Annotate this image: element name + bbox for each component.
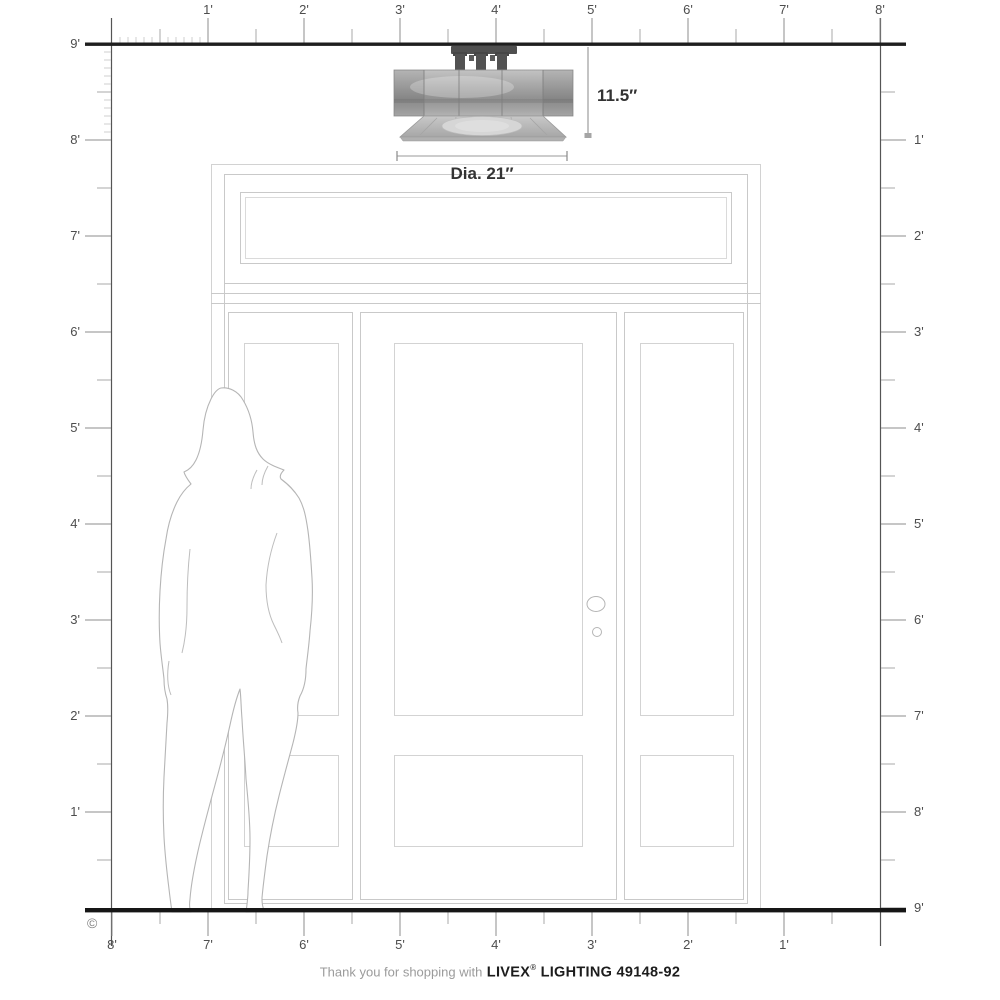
ruler-label: 5' xyxy=(579,2,605,18)
fixture-diffuser xyxy=(400,116,566,141)
scale-figure-silhouette xyxy=(159,388,312,912)
height-dimension-line xyxy=(585,47,592,138)
ruler-label: 3' xyxy=(52,612,80,628)
ruler-label: 1' xyxy=(52,804,80,820)
ruler-label: 1' xyxy=(771,937,797,953)
door-transom xyxy=(241,193,732,264)
ruler-label: 4' xyxy=(52,516,80,532)
ruler-label: 4' xyxy=(483,2,509,18)
ruler-label: 2' xyxy=(914,228,942,244)
fixture-posts xyxy=(453,52,509,71)
ruler-label: 9' xyxy=(52,36,80,52)
ruler-label: 7' xyxy=(914,708,942,724)
diameter-dimension-label: Dia. 21″ xyxy=(400,164,564,184)
diagram-canvas xyxy=(0,0,1000,1000)
product-dimension-diagram: 1'2'3'4'5'6'7'8' 9'8'7'6'5'4'3'2'1' 1'2'… xyxy=(0,0,1000,1000)
ruler-label: 2' xyxy=(52,708,80,724)
footer-text: Thank you for shopping with LIVEX® LIGHT… xyxy=(0,963,1000,981)
copyright-symbol: © xyxy=(87,915,97,931)
ruler-label: 1' xyxy=(195,2,221,18)
ruler-label: 1' xyxy=(914,132,942,148)
ruler-label: 8' xyxy=(914,804,942,820)
fixture-graphic xyxy=(394,46,573,141)
ruler-label: 7' xyxy=(52,228,80,244)
height-dimension-label: 11.5″ xyxy=(597,86,637,106)
ruler-label: 3' xyxy=(579,937,605,953)
ruler-label: 2' xyxy=(675,937,701,953)
diameter-dimension-line xyxy=(397,151,567,161)
fixture-drum-shade xyxy=(394,70,573,116)
ruler-label: 3' xyxy=(387,2,413,18)
ruler-label: 8' xyxy=(52,132,80,148)
ruler-label: 8' xyxy=(867,2,893,18)
ruler-label: 6' xyxy=(52,324,80,340)
product-number: LIGHTING 49148-92 xyxy=(541,964,681,980)
ruler-label: 5' xyxy=(387,937,413,953)
ceiling-line xyxy=(85,43,906,46)
footer-prefix: Thank you for shopping with xyxy=(320,964,483,979)
ruler-label: 6' xyxy=(291,937,317,953)
ruler-label: 7' xyxy=(195,937,221,953)
door-sidelight-right xyxy=(625,313,744,900)
ruler-label: 4' xyxy=(914,420,942,436)
ruler-label: 6' xyxy=(675,2,701,18)
floor-line xyxy=(85,908,906,912)
ruler-label: 7' xyxy=(771,2,797,18)
brand-name: LIVEX xyxy=(487,964,530,980)
ruler-label: 3' xyxy=(914,324,942,340)
door-knob xyxy=(587,597,605,637)
ruler-label: 9' xyxy=(914,900,942,916)
door-slab xyxy=(361,313,617,900)
ruler-label: 2' xyxy=(291,2,317,18)
ruler-label: 6' xyxy=(914,612,942,628)
ruler-label: 4' xyxy=(483,937,509,953)
ruler-label: 8' xyxy=(99,937,125,953)
ruler-label: 5' xyxy=(52,420,80,436)
registered-mark: ® xyxy=(530,963,536,972)
ruler-label: 5' xyxy=(914,516,942,532)
